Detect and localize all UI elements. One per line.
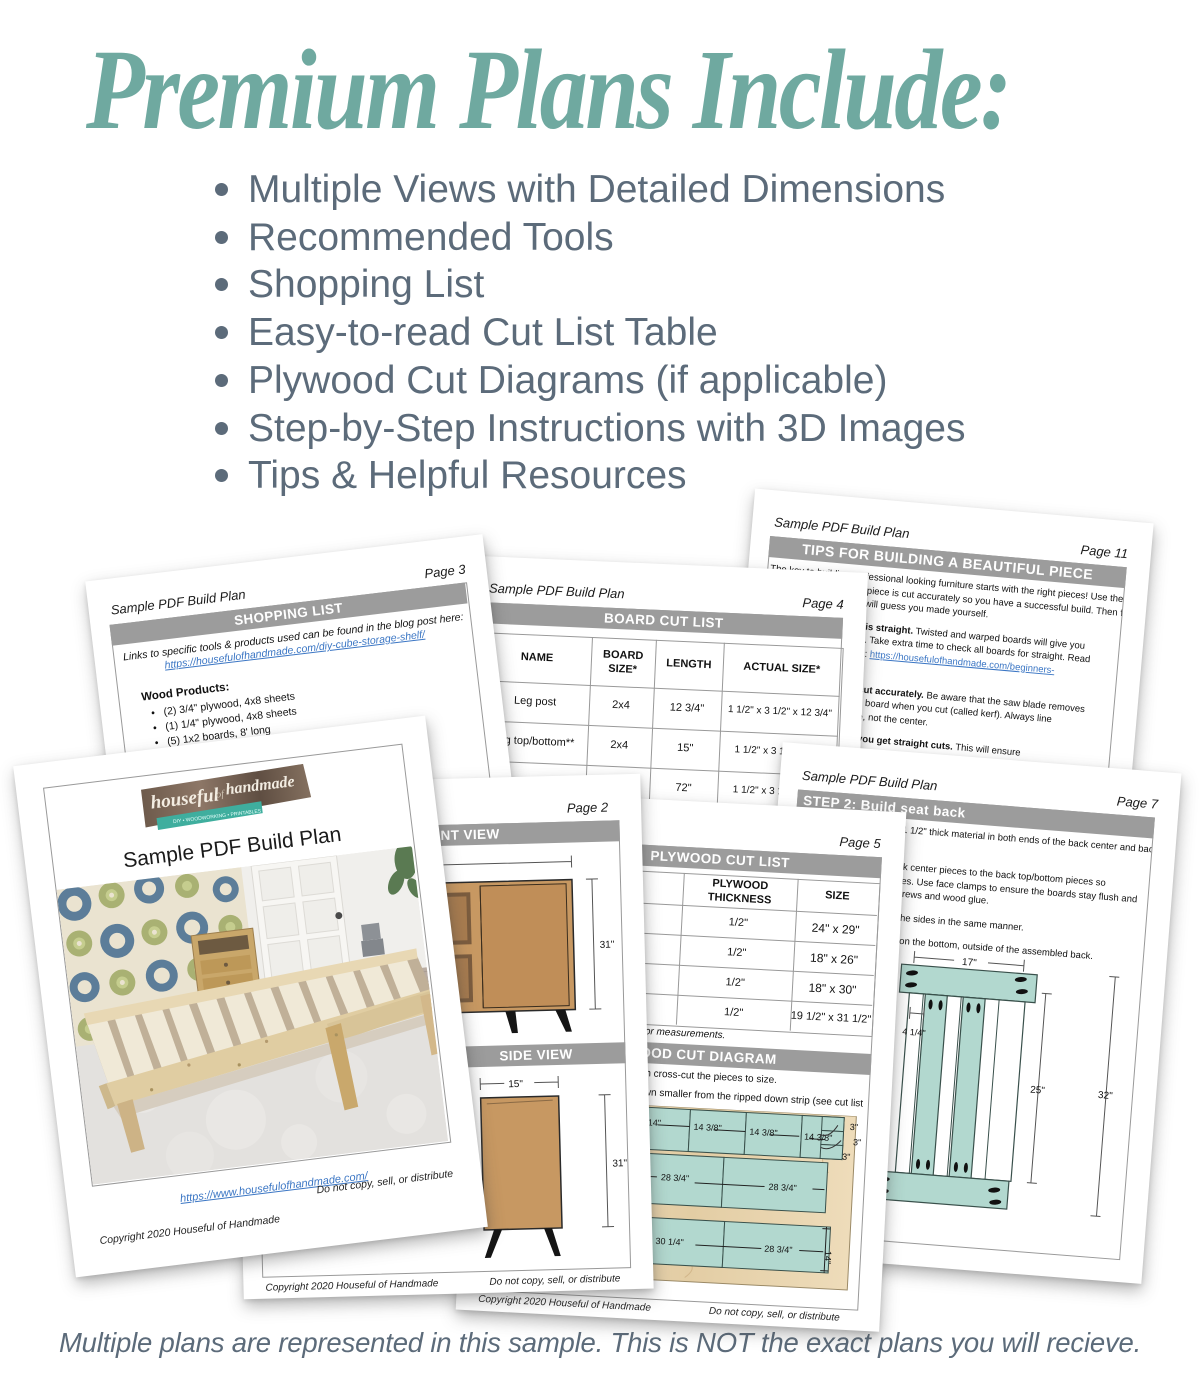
svg-text:17": 17": [962, 957, 978, 969]
svg-text:3": 3": [850, 1122, 859, 1132]
svg-text:3": 3": [842, 1151, 851, 1161]
svg-text:31": 31": [612, 1159, 627, 1170]
svg-text:14 3/8": 14 3/8": [693, 1121, 722, 1132]
svg-text:25": 25": [1030, 1084, 1046, 1096]
svg-text:31": 31": [599, 940, 614, 951]
svg-text:3": 3": [853, 1137, 862, 1147]
svg-text:28 3/4": 28 3/4": [764, 1243, 793, 1254]
svg-text:15": 15": [508, 1079, 523, 1090]
svg-text:32": 32": [1098, 1090, 1114, 1102]
svg-text:14 3/8": 14 3/8": [749, 1126, 778, 1137]
svg-text:4 1/4": 4 1/4": [902, 1026, 926, 1038]
svg-text:28 3/4": 28 3/4": [768, 1181, 797, 1192]
svg-text:14 3/8": 14 3/8": [804, 1131, 833, 1142]
